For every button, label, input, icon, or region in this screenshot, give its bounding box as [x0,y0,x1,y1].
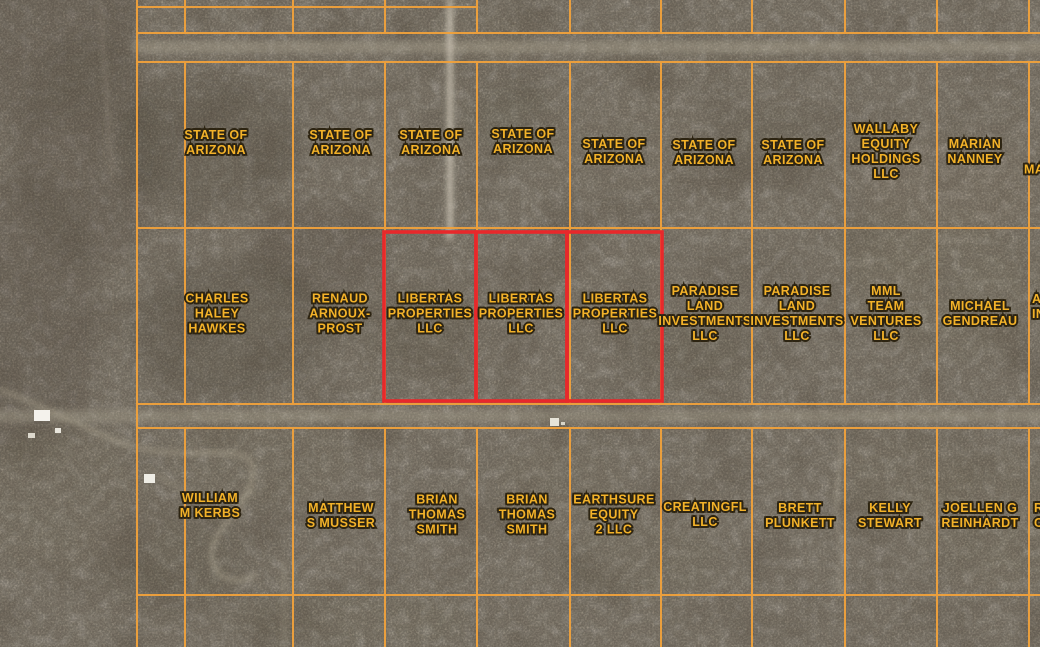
parcel-label-earthsure-equity-2[interactable]: EARTHSURE EQUITY 2 LLC [573,493,654,538]
parcel-label-brett-plunkett[interactable]: BRETT PLUNKETT [765,501,835,531]
parcel-label-brian-thomas-smith-2[interactable]: BRIAN THOMAS SMITH [499,493,556,538]
parcel-label-paradise-land-investments-1[interactable]: PARADISE LAND INVESTMENTS LLC [658,284,751,344]
parcel-label-mml-team-ventures[interactable]: MML TEAM VENTURES LLC [850,284,921,344]
parcel-label-state-of-arizona-4[interactable]: STATE OF ARIZONA [491,127,554,157]
parcel-label-libertas-properties-2[interactable]: LIBERTAS PROPERTIES LLC [479,292,564,337]
parcel-label-clipped-middle-right[interactable]: A IN [1032,292,1040,322]
parcel-label-matthew-s-musser[interactable]: MATTHEW S MUSSER [307,501,376,531]
parcel-label-wallaby-equity-holdings[interactable]: WALLABY EQUITY HOLDINGS LLC [851,122,920,182]
parcel-label-renaud-arnoux-prost[interactable]: RENAUD ARNOUX- PROST [309,292,370,337]
parcel-label-brian-thomas-smith-1[interactable]: BRIAN THOMAS SMITH [409,493,466,538]
parcel-label-charles-haley-hawkes[interactable]: CHARLES HALEY HAWKES [185,292,248,337]
parcel-label-william-m-kerbs[interactable]: WILLIAM M KERBS [180,491,240,521]
parcel-label-clipped-bottom-right[interactable]: R C [1034,501,1040,531]
parcel-label-state-of-arizona-5[interactable]: STATE OF ARIZONA [582,137,645,167]
parcel-label-state-of-arizona-7[interactable]: STATE OF ARIZONA [761,138,824,168]
parcel-label-clipped-top-right[interactable]: MA [1024,163,1040,178]
parcel-label-michael-gendreau[interactable]: MICHAEL GENDREAU [943,299,1018,329]
parcel-label-creatingfl[interactable]: CREATINGFL LLC [663,500,747,530]
parcel-label-state-of-arizona-2[interactable]: STATE OF ARIZONA [309,128,372,158]
parcel-map-canvas[interactable]: STATE OF ARIZONA STATE OF ARIZONA STATE … [0,0,1040,647]
parcel-label-state-of-arizona-6[interactable]: STATE OF ARIZONA [672,138,735,168]
parcel-label-libertas-properties-1[interactable]: LIBERTAS PROPERTIES LLC [388,292,473,337]
parcel-label-kelly-stewart[interactable]: KELLY STEWART [858,501,922,531]
parcel-label-paradise-land-investments-2[interactable]: PARADISE LAND INVESTMENTS LLC [750,284,843,344]
parcel-label-state-of-arizona-3[interactable]: STATE OF ARIZONA [399,128,462,158]
parcel-label-marian-nanney[interactable]: MARIAN NANNEY [947,137,1002,167]
parcel-label-joellen-g-reinhardt[interactable]: JOELLEN G REINHARDT [941,501,1018,531]
parcel-label-state-of-arizona-1[interactable]: STATE OF ARIZONA [184,128,247,158]
parcel-label-libertas-properties-3[interactable]: LIBERTAS PROPERTIES LLC [573,292,658,337]
